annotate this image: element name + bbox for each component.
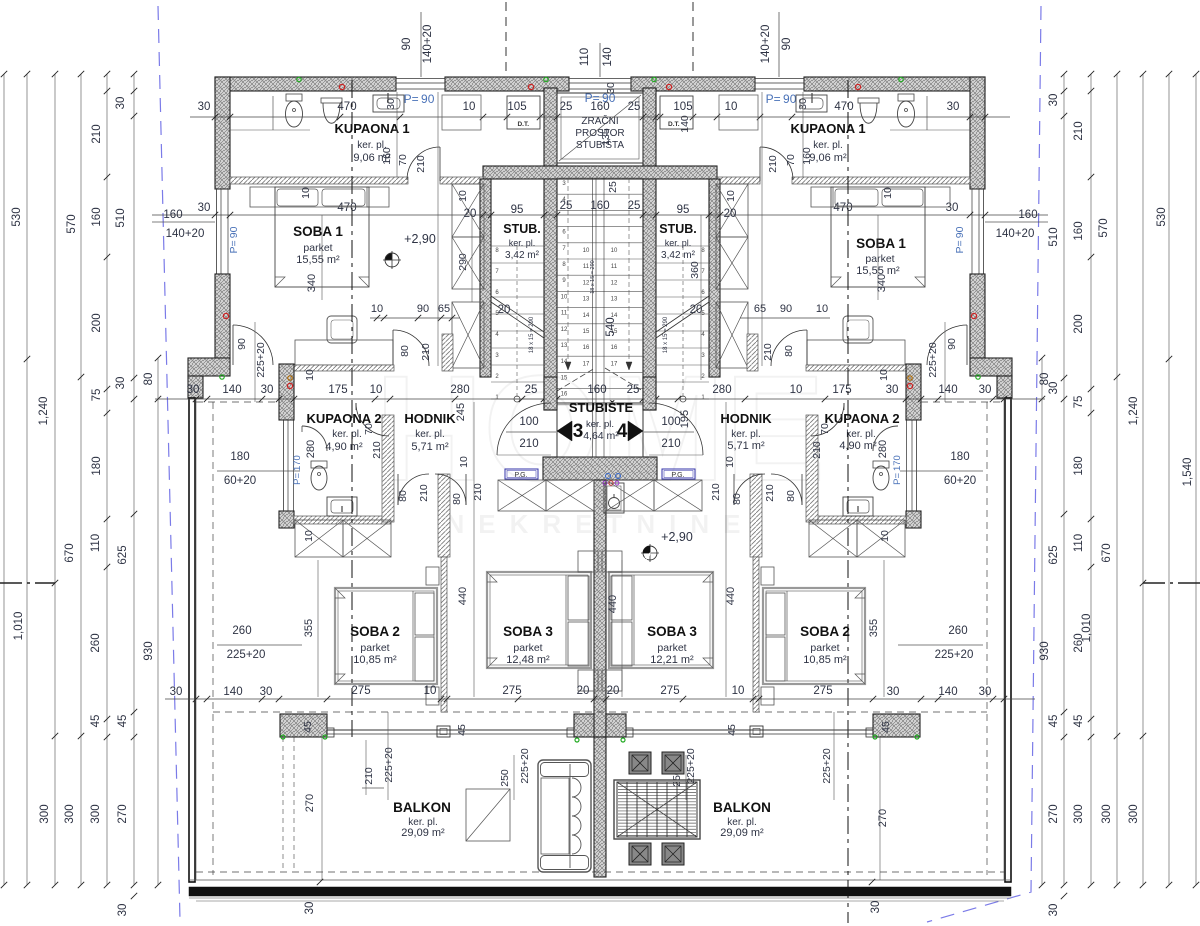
svg-text:140+20: 140+20: [422, 25, 434, 64]
svg-text:25: 25: [628, 101, 641, 113]
svg-text:20: 20: [724, 208, 737, 220]
svg-text:P.G.: P.G.: [514, 472, 527, 479]
svg-text:470: 470: [834, 101, 853, 113]
svg-text:200: 200: [91, 313, 103, 332]
svg-text:parket: parket: [360, 642, 389, 654]
svg-text:275: 275: [502, 685, 521, 697]
svg-text:270: 270: [304, 794, 316, 812]
svg-text:110: 110: [90, 534, 102, 552]
svg-text:5,71 m²: 5,71 m²: [411, 441, 449, 453]
svg-text:25: 25: [560, 101, 573, 113]
svg-text:ker. pl.: ker. pl.: [731, 429, 760, 440]
svg-text:105: 105: [507, 101, 526, 113]
svg-text:30: 30: [304, 902, 316, 915]
svg-text:P.G.: P.G.: [671, 472, 684, 479]
svg-text:30: 30: [198, 202, 211, 214]
svg-text:11: 11: [561, 311, 568, 317]
svg-text:30: 30: [115, 97, 127, 110]
svg-text:KUPAONA 1: KUPAONA 1: [790, 121, 865, 136]
svg-text:210: 210: [811, 441, 823, 459]
svg-text:10: 10: [611, 248, 618, 254]
svg-text:180: 180: [230, 451, 249, 463]
svg-text:11: 11: [611, 264, 618, 270]
svg-text:45: 45: [456, 724, 468, 736]
svg-text:SOBA 3: SOBA 3: [503, 624, 553, 639]
svg-text:1,010: 1,010: [13, 612, 25, 641]
svg-text:60+20: 60+20: [224, 475, 256, 487]
svg-text:275: 275: [351, 685, 370, 697]
svg-text:20: 20: [607, 685, 620, 697]
svg-text:80: 80: [1039, 373, 1051, 386]
svg-text:80: 80: [785, 490, 797, 502]
svg-text:45: 45: [880, 721, 892, 733]
svg-text:210: 210: [363, 767, 375, 785]
svg-text:45: 45: [1073, 715, 1085, 728]
svg-text:9,06 m²: 9,06 m²: [809, 152, 847, 164]
svg-text:15: 15: [583, 329, 590, 335]
svg-text:SOBA 1: SOBA 1: [856, 236, 906, 251]
svg-text:30: 30: [261, 384, 274, 396]
svg-text:KUPAONA 1: KUPAONA 1: [334, 121, 409, 136]
svg-text:440: 440: [457, 587, 469, 605]
svg-text:1,240: 1,240: [1128, 397, 1140, 426]
svg-text:470: 470: [833, 202, 852, 214]
svg-text:10: 10: [304, 369, 316, 381]
svg-text:20: 20: [577, 685, 590, 697]
svg-text:10: 10: [725, 190, 737, 202]
svg-text:260: 260: [90, 633, 102, 652]
svg-text:20: 20: [498, 304, 511, 316]
svg-text:17: 17: [583, 361, 590, 367]
svg-text:270: 270: [877, 809, 889, 827]
svg-text:10: 10: [300, 187, 312, 199]
svg-text:95: 95: [511, 204, 524, 216]
svg-text:10: 10: [457, 190, 469, 202]
svg-text:160: 160: [163, 209, 182, 221]
svg-text:+2,90: +2,90: [404, 232, 436, 246]
svg-text:440: 440: [725, 587, 737, 605]
svg-text:25: 25: [627, 384, 640, 396]
svg-text:225+20: 225+20: [821, 748, 833, 783]
svg-text:160: 160: [91, 207, 103, 226]
svg-text:17: 17: [611, 361, 618, 367]
svg-text:4,64 m²: 4,64 m²: [583, 430, 619, 442]
svg-text:1,240: 1,240: [38, 397, 50, 426]
svg-text:300: 300: [1073, 804, 1085, 823]
svg-text:300: 300: [1101, 804, 1113, 823]
svg-text:250: 250: [499, 769, 511, 787]
svg-text:D.T.: D.T.: [668, 121, 680, 128]
svg-text:10,85 m²: 10,85 m²: [803, 654, 847, 666]
svg-text:D.T.: D.T.: [517, 121, 529, 128]
svg-text:ker. pl.: ker. pl.: [813, 140, 842, 151]
svg-text:ker. pl.: ker. pl.: [332, 429, 361, 440]
svg-text:14: 14: [561, 359, 568, 365]
svg-text:30: 30: [1048, 94, 1060, 107]
svg-text:15,55 m²: 15,55 m²: [296, 254, 340, 266]
svg-text:225+20: 225+20: [685, 748, 697, 783]
svg-text:15: 15: [561, 375, 568, 381]
svg-text:SOBA 3: SOBA 3: [647, 624, 697, 639]
svg-text:25: 25: [607, 181, 619, 193]
svg-text:210: 210: [710, 483, 722, 501]
svg-text:30: 30: [870, 901, 882, 914]
svg-text:70: 70: [397, 154, 409, 166]
svg-text:210: 210: [91, 124, 103, 143]
svg-text:70: 70: [785, 154, 797, 166]
svg-text:12: 12: [583, 280, 590, 286]
svg-text:10: 10: [463, 101, 476, 113]
svg-text:175: 175: [832, 384, 851, 396]
svg-text:260: 260: [232, 625, 251, 637]
svg-text:10: 10: [370, 384, 383, 396]
svg-text:30: 30: [187, 384, 200, 396]
svg-text:180: 180: [1073, 456, 1085, 475]
svg-text:530: 530: [1156, 207, 1168, 226]
svg-text:45: 45: [90, 715, 102, 728]
svg-text:625: 625: [1048, 545, 1060, 564]
svg-text:STUBIŠTE: STUBIŠTE: [569, 400, 634, 415]
svg-text:90: 90: [946, 338, 958, 350]
svg-text:13: 13: [583, 297, 590, 303]
svg-text:12,21 m²: 12,21 m²: [650, 654, 694, 666]
svg-text:STUB.: STUB.: [503, 222, 541, 236]
svg-text:3,42 m²: 3,42 m²: [505, 250, 540, 261]
svg-text:65: 65: [754, 303, 766, 315]
svg-text:25: 25: [628, 200, 641, 212]
svg-text:ZRAČNI: ZRAČNI: [581, 114, 618, 127]
svg-text:160: 160: [1073, 221, 1085, 240]
svg-text:P= 90: P= 90: [954, 226, 966, 253]
svg-text:355: 355: [303, 619, 315, 637]
svg-text:ker. pl.: ker. pl.: [586, 419, 614, 430]
svg-text:14: 14: [583, 313, 590, 319]
svg-text:30: 30: [946, 202, 959, 214]
svg-text:95: 95: [677, 204, 690, 216]
svg-text:10: 10: [583, 248, 590, 254]
svg-text:P= 90: P= 90: [228, 226, 240, 253]
svg-text:540: 540: [605, 317, 617, 336]
svg-text:11: 11: [583, 264, 590, 270]
svg-text:105: 105: [673, 101, 692, 113]
svg-text:930: 930: [1039, 641, 1051, 660]
svg-text:180: 180: [950, 451, 969, 463]
svg-text:570: 570: [66, 214, 78, 233]
svg-text:18 x 15 = 290: 18 x 15 = 290: [590, 260, 596, 294]
svg-text:90: 90: [401, 38, 413, 51]
svg-text:80: 80: [783, 345, 795, 357]
svg-text:280: 280: [712, 384, 731, 396]
svg-text:110: 110: [579, 48, 591, 66]
svg-text:45: 45: [302, 721, 314, 733]
svg-text:280: 280: [877, 440, 889, 458]
svg-text:30: 30: [979, 686, 992, 698]
svg-text:280: 280: [450, 384, 469, 396]
svg-text:10: 10: [882, 187, 894, 199]
svg-text:210: 210: [371, 441, 383, 459]
svg-text:245: 245: [455, 403, 467, 421]
svg-text:140: 140: [938, 686, 957, 698]
svg-text:340: 340: [306, 274, 318, 292]
svg-text:930: 930: [143, 641, 155, 660]
svg-text:625: 625: [117, 545, 129, 564]
svg-text:440: 440: [607, 595, 619, 613]
svg-text:225+20: 225+20: [383, 747, 395, 782]
svg-text:ker. pl.: ker. pl.: [415, 429, 444, 440]
svg-text:355: 355: [868, 619, 880, 637]
svg-text:225+20: 225+20: [927, 342, 939, 377]
svg-text:13: 13: [561, 343, 568, 349]
svg-text:70: 70: [819, 423, 831, 435]
svg-text:29,09 m²: 29,09 m²: [720, 827, 764, 839]
svg-text:180: 180: [91, 456, 103, 475]
svg-text:3: 3: [573, 421, 584, 442]
svg-text:3,42 m²: 3,42 m²: [661, 250, 696, 261]
svg-text:90: 90: [781, 38, 793, 51]
svg-text:parket: parket: [865, 253, 894, 265]
svg-text:275: 275: [813, 685, 832, 697]
svg-text:30: 30: [115, 377, 127, 390]
svg-text:45: 45: [117, 715, 129, 728]
svg-text:670: 670: [64, 543, 76, 562]
svg-text:ker. pl.: ker. pl.: [846, 429, 875, 440]
svg-text:340: 340: [876, 274, 888, 292]
svg-text:18 x 15 = 290: 18 x 15 = 290: [663, 316, 669, 353]
svg-text:HODNIK: HODNIK: [720, 411, 772, 426]
svg-text:100: 100: [661, 416, 680, 428]
svg-text:140: 140: [938, 384, 957, 396]
svg-text:160: 160: [590, 101, 609, 113]
svg-text:parket: parket: [657, 642, 686, 654]
svg-text:20: 20: [690, 304, 703, 316]
svg-text:10,85 m²: 10,85 m²: [353, 654, 397, 666]
svg-text:10: 10: [424, 685, 437, 697]
svg-text:210: 210: [519, 438, 538, 450]
svg-text:280: 280: [305, 440, 317, 458]
svg-text:10: 10: [878, 369, 890, 381]
svg-text:140+20: 140+20: [166, 228, 205, 240]
svg-text:SOBA 1: SOBA 1: [293, 224, 343, 239]
svg-text:300: 300: [64, 804, 76, 823]
svg-text:parket: parket: [513, 642, 542, 654]
svg-text:510: 510: [115, 208, 127, 227]
svg-text:30: 30: [979, 384, 992, 396]
svg-text:135: 135: [600, 128, 612, 146]
svg-text:18 x 15 = 290: 18 x 15 = 290: [529, 316, 535, 353]
svg-text:4,90 m²: 4,90 m²: [839, 440, 877, 452]
svg-text:210: 210: [661, 438, 680, 450]
svg-text:13: 13: [611, 297, 618, 303]
svg-text:16: 16: [583, 345, 590, 351]
svg-text:1,540: 1,540: [1182, 458, 1194, 487]
svg-text:160: 160: [801, 147, 813, 165]
svg-text:140: 140: [222, 384, 241, 396]
svg-text:10: 10: [790, 384, 803, 396]
svg-text:80: 80: [731, 493, 743, 505]
svg-text:25: 25: [560, 200, 573, 212]
svg-text:75: 75: [1073, 396, 1085, 409]
svg-text:SOBA 2: SOBA 2: [350, 624, 400, 639]
svg-text:270: 270: [1048, 804, 1060, 823]
svg-text:160: 160: [587, 384, 606, 396]
svg-text:45: 45: [1048, 715, 1060, 728]
svg-text:12,48 m²: 12,48 m²: [506, 654, 550, 666]
svg-text:45: 45: [726, 724, 738, 736]
svg-text:70: 70: [363, 423, 375, 435]
svg-text:225+20: 225+20: [935, 649, 974, 661]
svg-text:160: 160: [1018, 209, 1037, 221]
svg-text:670: 670: [1101, 543, 1113, 562]
svg-text:P= 170: P= 170: [892, 455, 903, 485]
svg-text:210: 210: [764, 484, 776, 502]
svg-text:360: 360: [689, 261, 701, 279]
svg-text:260: 260: [1073, 633, 1085, 652]
svg-text:10: 10: [725, 101, 738, 113]
svg-text:HODNIK: HODNIK: [404, 411, 456, 426]
svg-text:65: 65: [438, 303, 450, 315]
svg-text:P= 90: P= 90: [766, 92, 797, 106]
svg-text:10: 10: [879, 530, 891, 542]
svg-text:+2,90: +2,90: [661, 530, 693, 544]
svg-text:STUB.: STUB.: [659, 222, 697, 236]
svg-text:parket: parket: [303, 242, 332, 254]
svg-text:4,90 m²: 4,90 m²: [325, 441, 363, 453]
svg-text:100: 100: [519, 416, 538, 428]
svg-text:530: 530: [11, 207, 23, 226]
svg-text:20: 20: [464, 208, 477, 220]
svg-text:30: 30: [170, 686, 183, 698]
svg-text:80: 80: [451, 493, 463, 505]
svg-text:510: 510: [1048, 227, 1060, 246]
svg-text:30: 30: [198, 101, 211, 113]
svg-text:110: 110: [1073, 534, 1085, 552]
svg-text:260: 260: [948, 625, 967, 637]
svg-text:60+20: 60+20: [944, 475, 976, 487]
svg-text:470: 470: [337, 202, 356, 214]
svg-text:90: 90: [417, 303, 429, 315]
svg-text:210: 210: [767, 155, 779, 173]
svg-text:90: 90: [236, 338, 248, 350]
svg-text:ker. pl.: ker. pl.: [665, 238, 692, 248]
svg-text:P= 170: P= 170: [292, 455, 303, 485]
svg-text:10: 10: [458, 456, 470, 468]
svg-text:5,71 m²: 5,71 m²: [727, 440, 765, 452]
svg-text:570: 570: [1098, 218, 1110, 237]
svg-text:160: 160: [590, 200, 609, 212]
svg-text:30: 30: [1048, 904, 1060, 917]
svg-text:parket: parket: [810, 642, 839, 654]
svg-text:140: 140: [602, 47, 614, 66]
svg-text:225+20: 225+20: [519, 748, 531, 783]
svg-text:KUPAONA 2: KUPAONA 2: [824, 411, 899, 426]
svg-text:25: 25: [525, 384, 538, 396]
svg-text:200: 200: [1073, 314, 1085, 333]
svg-text:80: 80: [397, 490, 409, 502]
svg-text:30: 30: [887, 686, 900, 698]
svg-text:80: 80: [143, 373, 155, 386]
svg-text:140+20: 140+20: [996, 228, 1035, 240]
svg-text:210: 210: [762, 343, 774, 361]
svg-text:275: 275: [660, 685, 679, 697]
svg-text:80: 80: [399, 345, 411, 357]
svg-text:90: 90: [780, 303, 792, 315]
svg-text:10: 10: [371, 303, 383, 315]
svg-text:16: 16: [611, 345, 618, 351]
svg-text:SOBA 2: SOBA 2: [800, 624, 850, 639]
svg-text:ker. pl.: ker. pl.: [509, 238, 536, 248]
svg-text:140: 140: [679, 115, 691, 133]
svg-text:30: 30: [260, 686, 273, 698]
svg-text:270: 270: [117, 804, 129, 823]
svg-text:10: 10: [816, 303, 828, 315]
svg-text:30: 30: [947, 101, 960, 113]
svg-text:BALKON: BALKON: [393, 800, 451, 815]
svg-text:225+20: 225+20: [255, 342, 267, 377]
svg-text:30: 30: [886, 384, 899, 396]
svg-text:300: 300: [90, 804, 102, 823]
svg-text:75: 75: [91, 389, 103, 402]
svg-text:10: 10: [732, 685, 745, 697]
svg-text:30: 30: [117, 904, 129, 917]
svg-text:175: 175: [328, 384, 347, 396]
svg-text:12: 12: [561, 327, 568, 333]
svg-text:30: 30: [385, 98, 397, 110]
svg-text:210: 210: [1073, 121, 1085, 140]
svg-text:140: 140: [223, 686, 242, 698]
svg-text:P= 90: P= 90: [404, 92, 435, 106]
svg-text:210: 210: [415, 155, 427, 173]
svg-text:10: 10: [303, 530, 315, 542]
svg-text:12: 12: [611, 280, 618, 286]
svg-text:225+20: 225+20: [227, 649, 266, 661]
svg-text:10: 10: [561, 294, 568, 300]
svg-text:16: 16: [561, 392, 568, 398]
svg-text:160: 160: [381, 147, 393, 165]
svg-text:29,09 m²: 29,09 m²: [401, 827, 445, 839]
svg-text:300: 300: [39, 804, 51, 823]
svg-text:210: 210: [418, 484, 430, 502]
svg-text:140+20: 140+20: [760, 25, 772, 64]
svg-text:300: 300: [1128, 804, 1140, 823]
svg-text:BALKON: BALKON: [713, 800, 771, 815]
svg-text:210: 210: [420, 343, 432, 361]
